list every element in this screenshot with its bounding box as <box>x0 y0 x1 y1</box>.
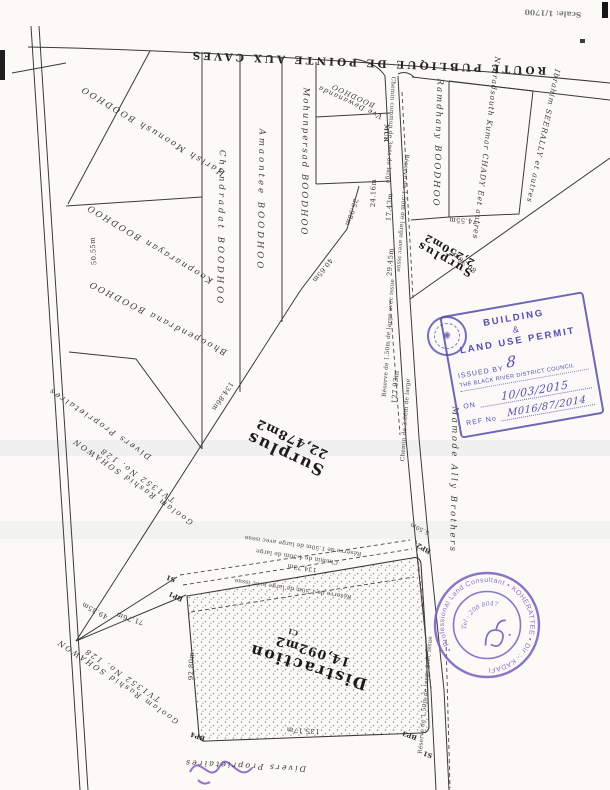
measure-74-55: 74.55m <box>449 216 478 225</box>
scan-artifact <box>580 39 585 43</box>
permit-ref-label: REF No <box>466 415 498 427</box>
measure-92-80: 92.80m <box>188 652 196 681</box>
owner-mamode: Mamode Ally Brothers <box>447 406 458 553</box>
area-distraction-code: C1 <box>287 627 299 637</box>
seal-ring-text: • Professional Land Consultant • KOHERAT… <box>420 558 554 692</box>
note-mur: MUR <box>381 124 388 142</box>
owner-amaontee: Amaontee BOODHOO <box>254 129 265 272</box>
scan-streak <box>0 521 610 539</box>
measure-24-16: 24.16m <box>370 179 378 208</box>
permit-signature-mark: 8 <box>507 352 517 372</box>
owner-chandradat: Chandradat BOODHOO <box>214 150 226 306</box>
consultant-seal: • Professional Land Consultant • KOHERAT… <box>420 558 554 692</box>
scan-artifact <box>602 2 608 18</box>
measure-135-17: 135.17m <box>286 726 319 735</box>
permit-stamp: BUILDING & LAND USE PERMIT ISSUED BY 8 T… <box>439 291 604 438</box>
council-emblem-icon: ✺ <box>432 321 462 351</box>
scanned-survey-plan: • Professional Land Consultant • KOHERAT… <box>0 0 610 790</box>
seal-phone: Tel : 208 8047 <box>454 593 501 633</box>
permit-on-label: ON <box>463 402 477 411</box>
scan-artifact <box>0 50 5 80</box>
owner-mohunpersad: Mohunpersad BOODHOO <box>298 88 310 237</box>
scale-note: Scale: 1/1700 <box>524 8 581 19</box>
